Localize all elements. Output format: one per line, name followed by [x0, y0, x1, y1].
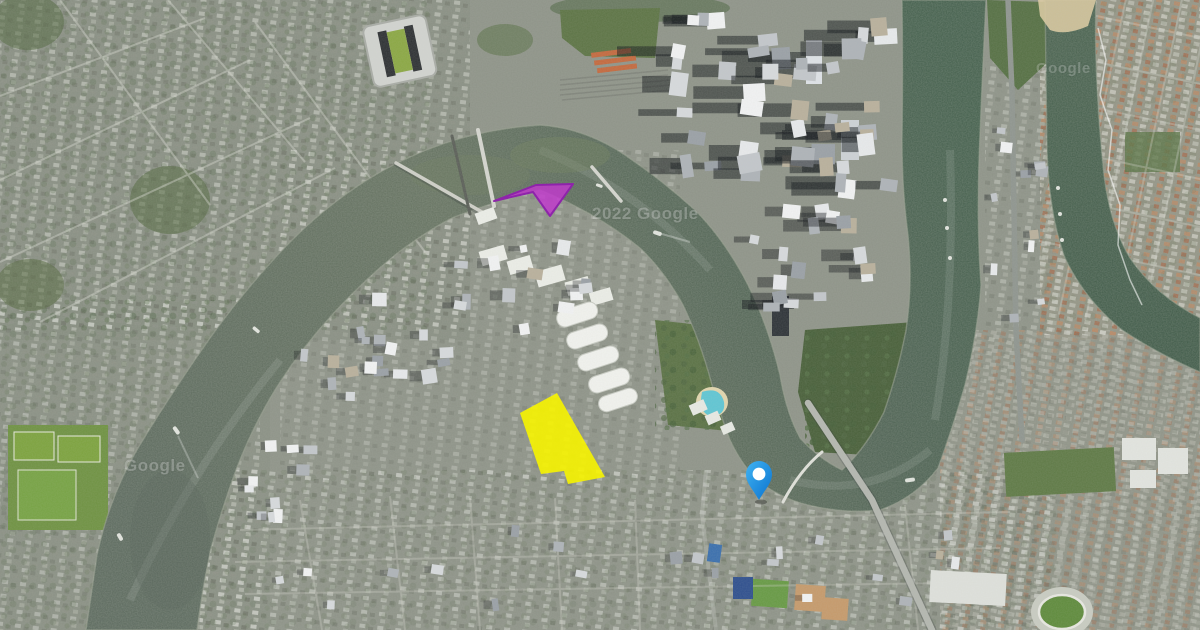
annotation-layer — [0, 0, 1200, 630]
location-pin-icon[interactable] — [746, 461, 772, 505]
magenta-area-polygon[interactable] — [494, 184, 573, 216]
yellow-area-polygon[interactable] — [520, 393, 605, 484]
map-canvas[interactable]: 2022 Google Google Google — [0, 0, 1200, 630]
